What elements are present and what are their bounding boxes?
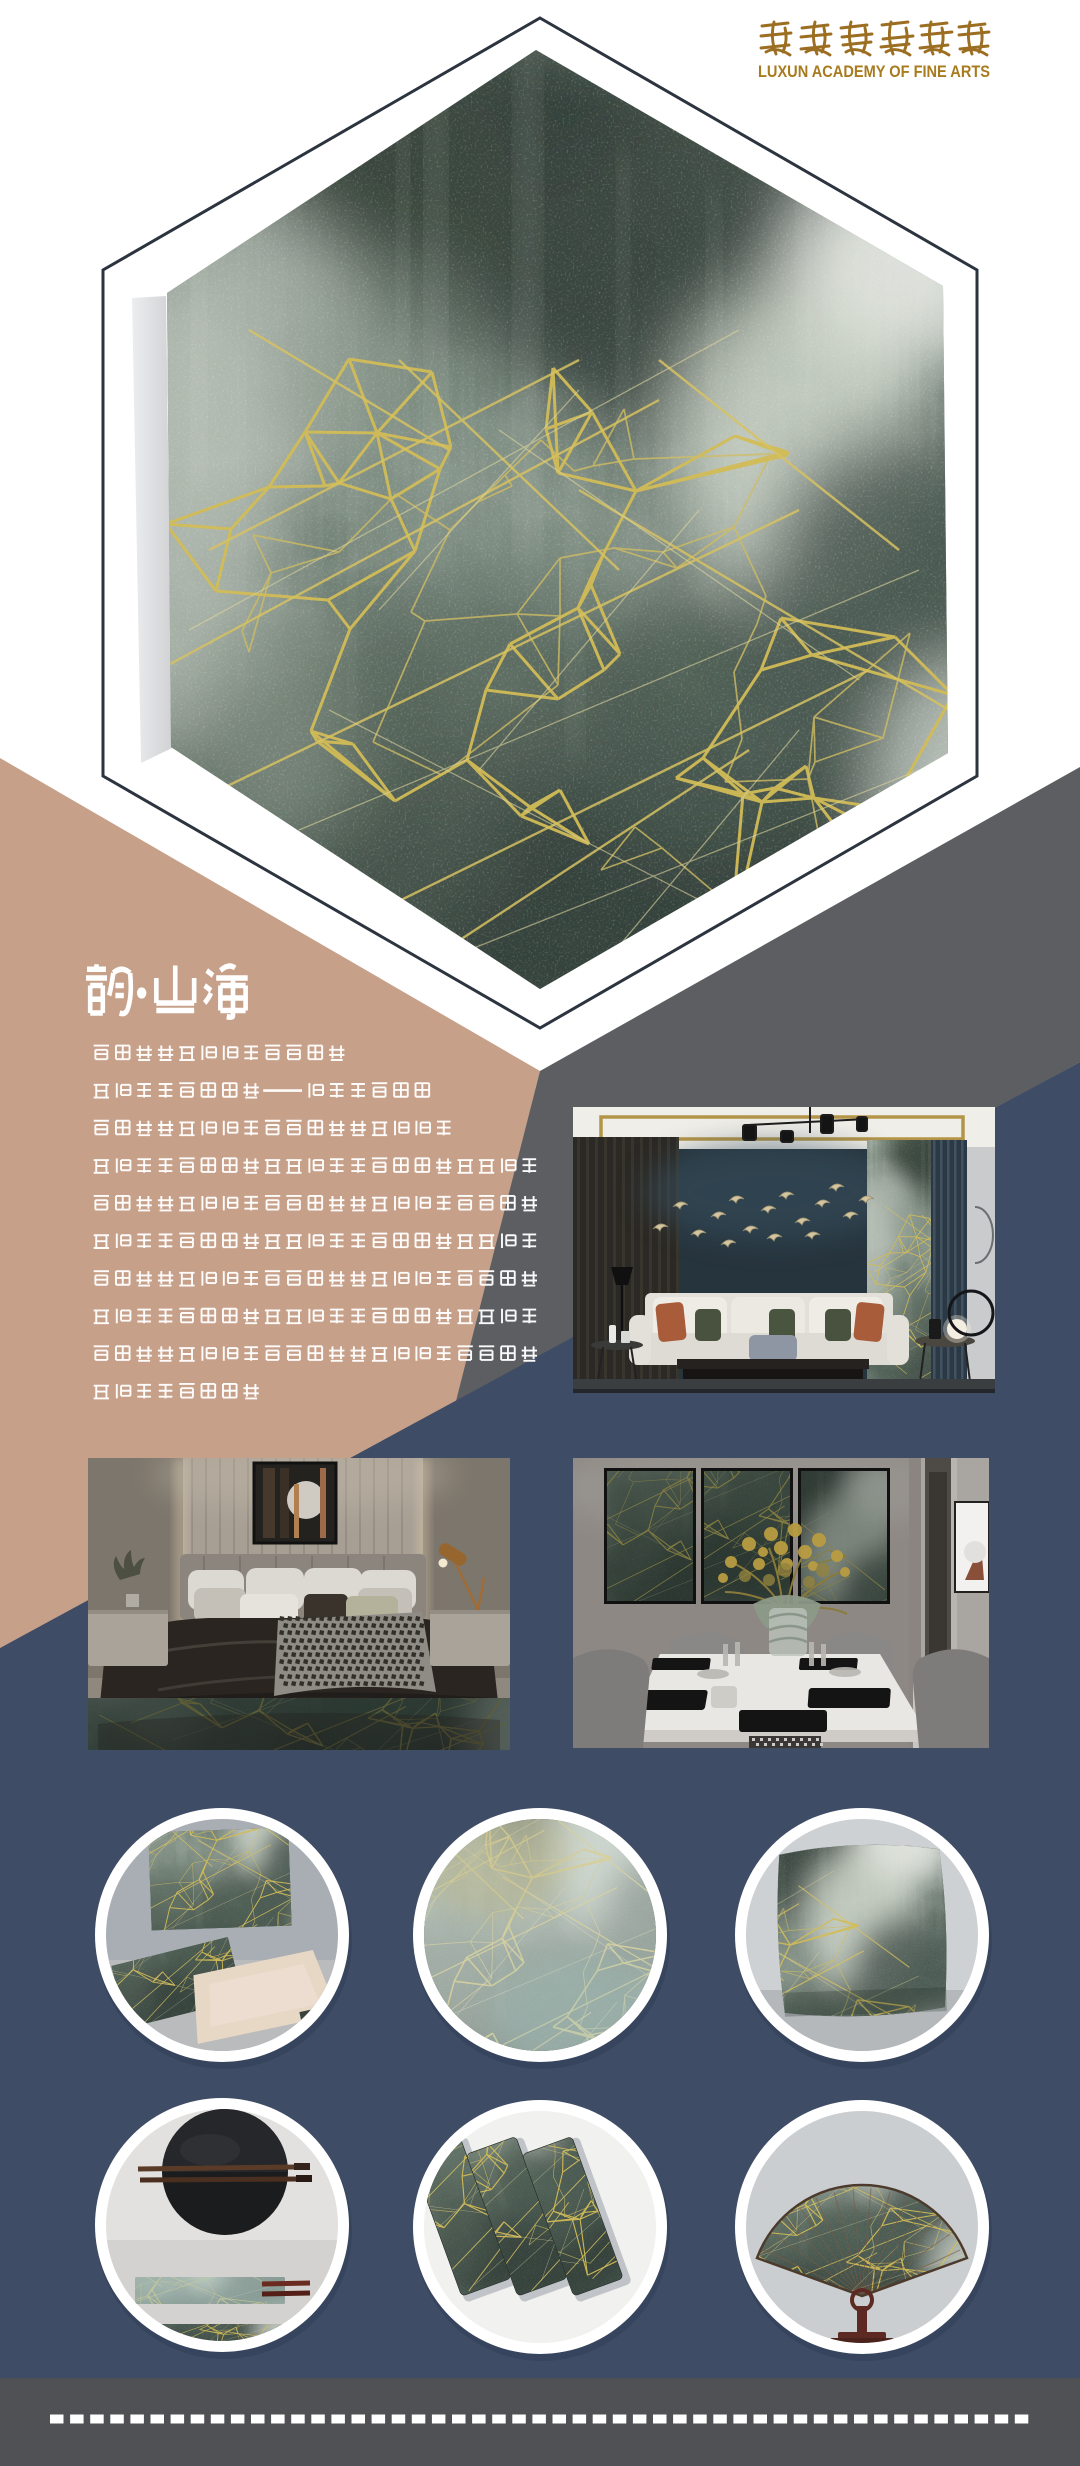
- svg-text:LUXUN ACADEMY OF FINE ARTS: LUXUN ACADEMY OF FINE ARTS: [758, 62, 990, 81]
